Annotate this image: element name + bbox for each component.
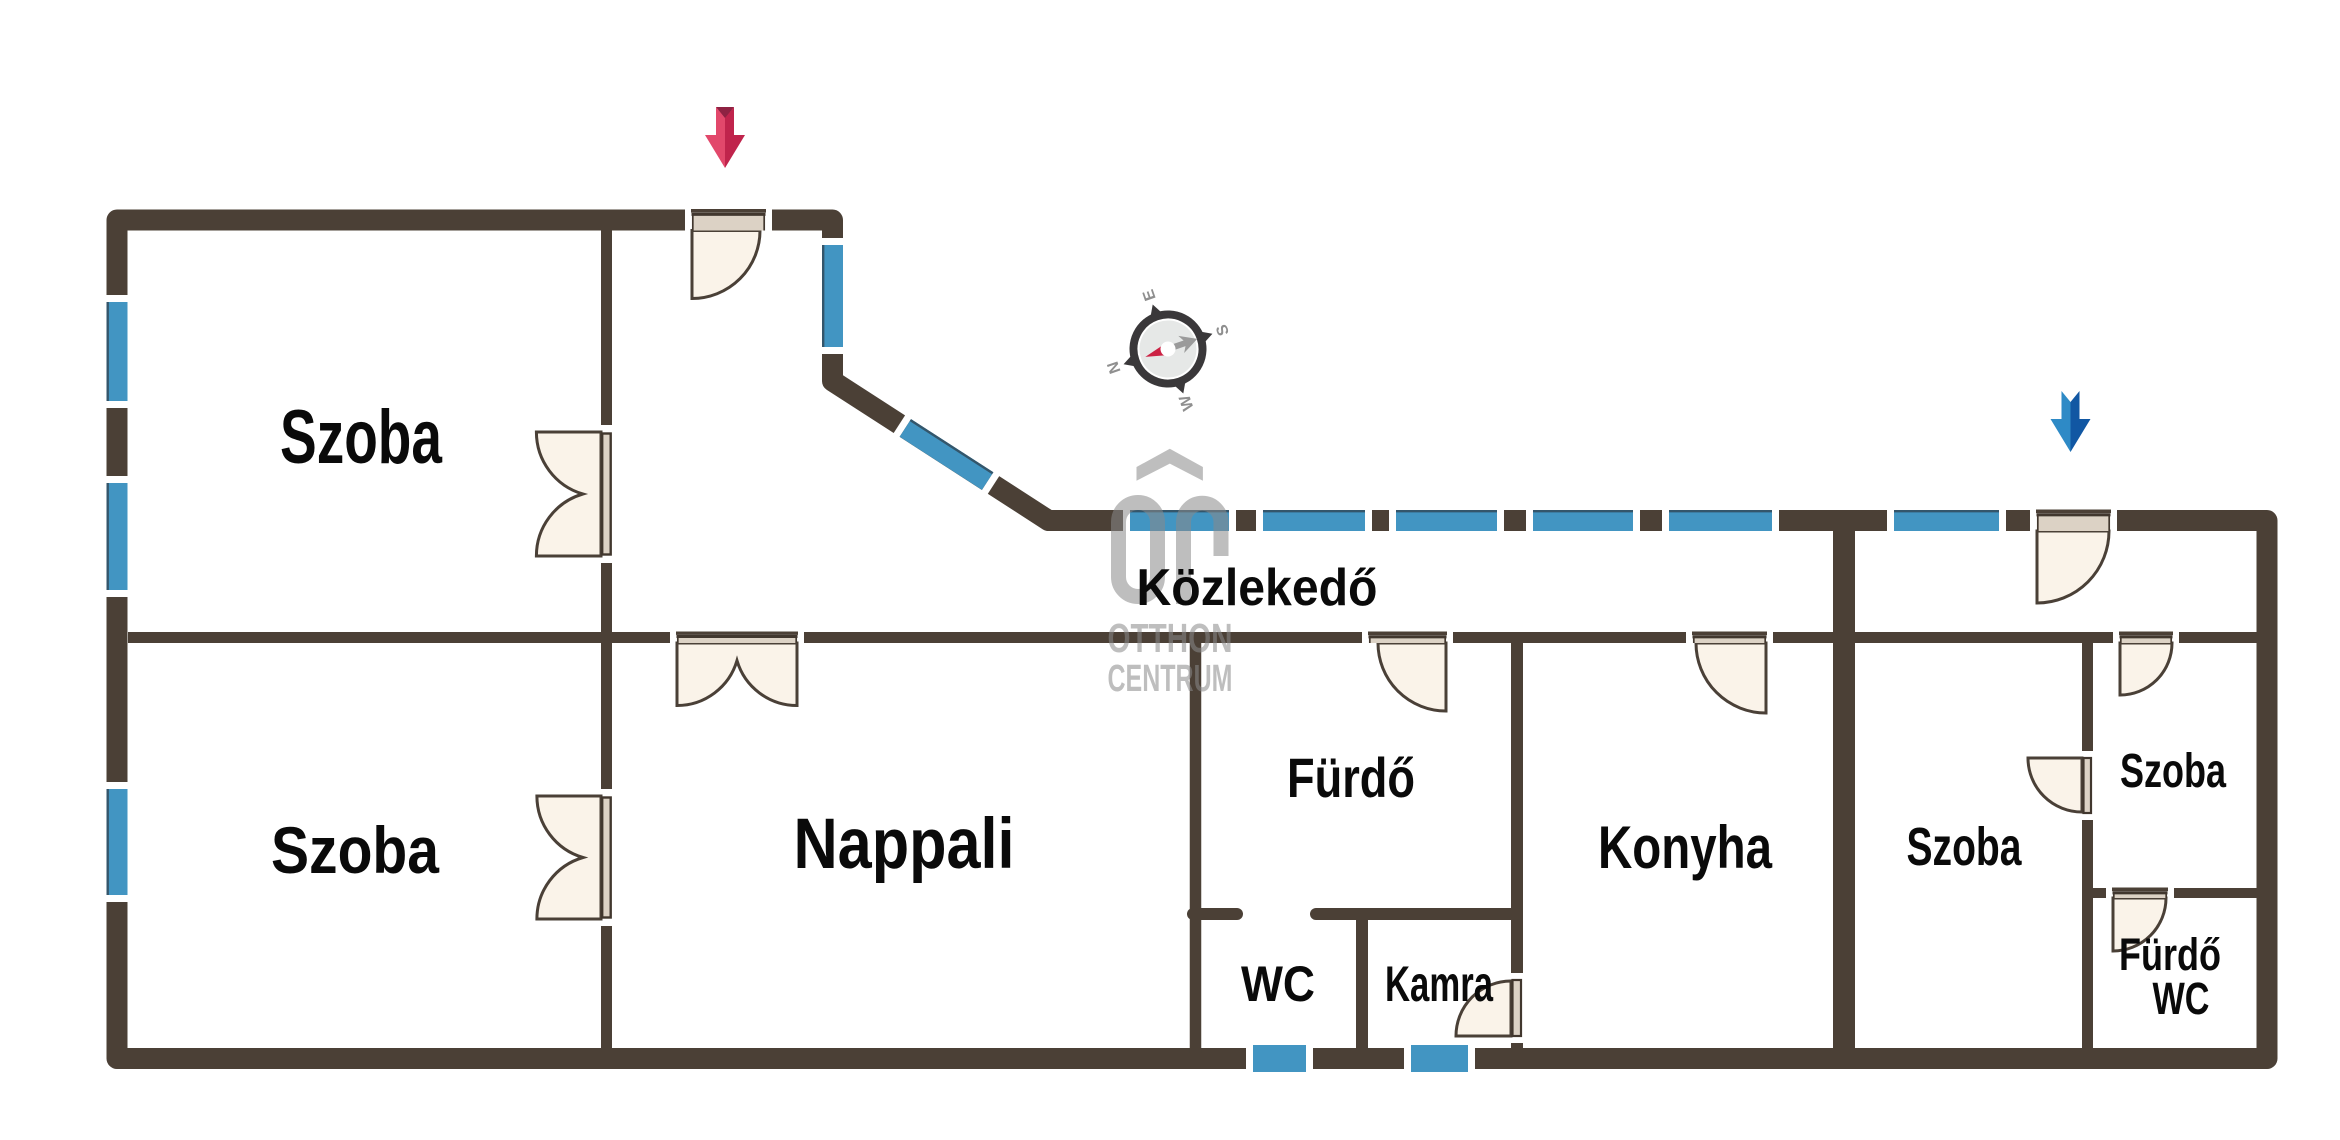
svg-text:WC: WC — [1241, 956, 1315, 1012]
svg-text:WC: WC — [2153, 973, 2210, 1024]
svg-text:Szoba: Szoba — [271, 813, 440, 887]
svg-text:Szoba: Szoba — [1907, 817, 2023, 877]
svg-text:Szoba: Szoba — [280, 395, 443, 480]
svg-text:CENTRUM: CENTRUM — [1108, 658, 1233, 700]
svg-text:Nappali: Nappali — [794, 805, 1015, 884]
svg-text:Kamra: Kamra — [1385, 956, 1494, 1012]
svg-text:Konyha: Konyha — [1598, 814, 1772, 881]
svg-text:Fürdő: Fürdő — [1287, 746, 1415, 809]
svg-text:Közlekedő: Közlekedő — [1137, 559, 1378, 617]
svg-text:Szoba: Szoba — [2120, 745, 2226, 798]
svg-text:OTTHON: OTTHON — [1108, 615, 1233, 661]
